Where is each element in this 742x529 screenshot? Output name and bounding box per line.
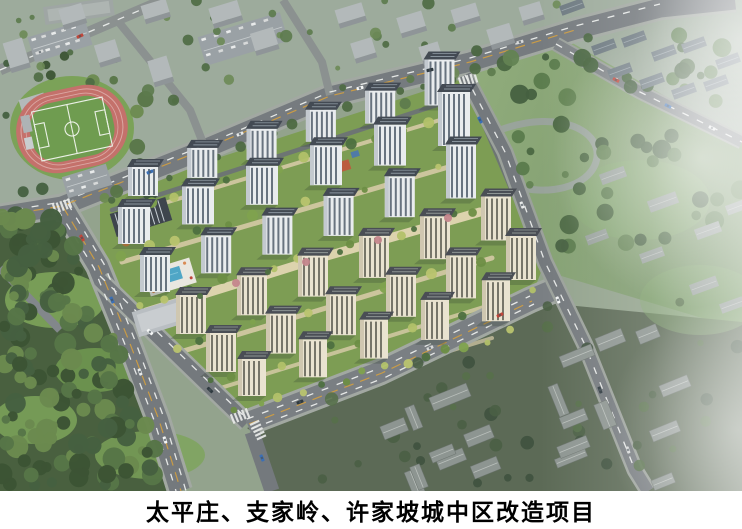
residential-tower <box>440 137 482 204</box>
tree <box>100 193 110 203</box>
tree <box>16 18 22 24</box>
caption-bar: 太平庄、支家岭、许家坡城中区改造项目 <box>0 491 742 529</box>
tree <box>362 187 368 193</box>
tower-side-shade <box>266 314 270 354</box>
tower-side-shade <box>386 275 390 317</box>
residential-tower <box>240 158 284 210</box>
tower-side-shade <box>247 129 251 160</box>
tree <box>160 296 168 304</box>
tower-side-shade <box>421 300 425 340</box>
tree <box>87 390 102 405</box>
tree <box>232 279 240 287</box>
tower-roof <box>480 189 517 197</box>
tower-roof <box>359 312 394 320</box>
tree <box>24 377 36 389</box>
tree <box>406 75 414 83</box>
residential-tower <box>122 159 164 201</box>
tree <box>2 112 9 119</box>
tower-side-shade <box>128 167 132 196</box>
tree <box>213 27 221 35</box>
tree <box>142 84 154 96</box>
tree <box>84 323 103 342</box>
tree <box>318 474 327 483</box>
tree <box>278 362 286 370</box>
tree <box>76 403 90 417</box>
tree <box>468 208 477 217</box>
tower-roof <box>364 83 401 91</box>
tree <box>168 95 179 106</box>
tower-shadow <box>231 315 267 320</box>
tree <box>74 267 83 276</box>
tower-side-shade <box>246 166 250 205</box>
tower-roof <box>297 248 334 256</box>
tower-side-shade <box>360 320 364 359</box>
tower-shadow <box>232 396 266 401</box>
residential-tower <box>318 188 360 241</box>
tower-roof <box>385 267 422 275</box>
tree <box>476 257 486 267</box>
tree <box>448 24 456 32</box>
residential-tower <box>195 227 237 278</box>
tree <box>224 75 234 85</box>
tree <box>325 392 338 405</box>
tree <box>100 371 118 389</box>
tree <box>287 119 298 130</box>
tree <box>318 381 325 388</box>
tree <box>100 335 118 353</box>
tree <box>108 197 115 204</box>
tree <box>98 465 116 483</box>
tower-side-shade <box>201 235 205 273</box>
tree <box>69 468 88 487</box>
tree <box>26 366 35 375</box>
tower-shadow <box>415 340 449 345</box>
tower-side-shade <box>324 196 328 236</box>
residential-tower <box>232 351 272 401</box>
tower-shadow <box>318 236 354 241</box>
tree <box>9 291 19 301</box>
residential-tower <box>134 247 176 297</box>
fog-haze <box>540 0 742 491</box>
tree <box>231 407 238 414</box>
tree <box>520 436 534 450</box>
tree <box>307 29 313 35</box>
tree <box>259 401 265 407</box>
tower-roof <box>181 178 220 186</box>
tree <box>413 442 421 450</box>
residential-tower <box>256 208 298 260</box>
tower-shadow <box>292 297 328 302</box>
tree <box>136 302 143 309</box>
tower-shadow <box>475 241 511 246</box>
tree <box>423 117 434 128</box>
tree <box>335 66 340 71</box>
tree <box>503 50 519 66</box>
tree <box>217 37 225 45</box>
tree <box>400 98 411 109</box>
tower-side-shade <box>206 333 210 372</box>
tree <box>12 356 27 371</box>
tree <box>227 373 236 382</box>
tree <box>273 393 282 402</box>
residential-tower <box>200 325 242 377</box>
tree <box>416 456 425 465</box>
tree <box>280 30 292 42</box>
residential-tower <box>368 117 412 171</box>
tree <box>34 72 44 82</box>
tower-facade <box>238 359 266 396</box>
tree <box>444 214 452 222</box>
tree <box>506 326 514 334</box>
tree <box>109 76 118 85</box>
tree <box>169 193 178 202</box>
tree <box>426 268 437 279</box>
tower-side-shade <box>306 110 310 142</box>
tree <box>142 459 158 475</box>
tree <box>125 419 135 429</box>
tree <box>490 439 503 452</box>
tower-side-shade <box>438 92 442 146</box>
tree <box>2 415 11 424</box>
tree <box>30 223 51 244</box>
tree <box>217 274 227 284</box>
tower-side-shade <box>299 339 303 377</box>
tower-roof <box>205 325 242 333</box>
tree <box>450 404 457 411</box>
tree <box>116 396 129 409</box>
residential-tower <box>181 140 223 183</box>
tower-side-shade <box>176 295 180 334</box>
tower-side-shade <box>262 216 266 255</box>
tree <box>346 138 357 149</box>
tower-facade <box>421 300 449 340</box>
tree <box>404 359 413 368</box>
aerial-rendering <box>0 0 742 491</box>
tree <box>301 197 311 207</box>
tower-side-shade <box>374 125 378 166</box>
tree <box>5 393 26 414</box>
tree <box>47 477 57 487</box>
tree <box>298 152 309 163</box>
residential-tower <box>415 292 455 345</box>
tree <box>98 418 118 438</box>
tree <box>435 164 441 170</box>
tower-side-shade <box>425 60 429 106</box>
tree <box>15 208 36 229</box>
tree <box>223 176 230 183</box>
tree <box>72 389 82 399</box>
tree <box>471 45 482 56</box>
tree <box>457 420 467 430</box>
tree <box>487 68 496 77</box>
tower-roof <box>445 247 482 255</box>
tower-shadow <box>476 321 510 326</box>
tower-side-shade <box>140 255 144 292</box>
tree <box>79 369 89 379</box>
tree <box>381 362 388 369</box>
residential-tower <box>176 178 220 229</box>
tower-side-shade <box>187 148 191 178</box>
tree <box>422 353 431 362</box>
tower-roof <box>505 228 542 236</box>
tower-facade <box>299 339 327 377</box>
tower-roof <box>445 137 482 145</box>
tree <box>510 85 529 104</box>
tree <box>36 183 48 195</box>
tree <box>41 462 51 472</box>
tree <box>170 236 180 246</box>
tower-shadow <box>414 259 450 264</box>
tower-roof <box>200 227 237 235</box>
tower-side-shade <box>481 197 485 241</box>
tree <box>208 377 214 383</box>
tree <box>57 416 71 430</box>
tree <box>68 433 89 454</box>
tree <box>374 236 382 244</box>
tower-roof <box>265 306 302 314</box>
tower-side-shade <box>482 280 486 321</box>
tower-roof <box>437 84 476 92</box>
tree <box>300 389 307 396</box>
tower-roof <box>305 102 342 110</box>
tree <box>18 186 29 197</box>
tree <box>48 293 66 311</box>
tower-side-shade <box>359 236 363 278</box>
tower-facade <box>482 280 510 321</box>
tree <box>408 323 417 332</box>
tree <box>473 478 482 487</box>
tree <box>235 141 246 152</box>
tree <box>110 185 123 198</box>
tree <box>525 474 533 482</box>
tower-roof <box>117 199 156 207</box>
tree <box>331 417 338 424</box>
tree <box>247 210 258 221</box>
tree <box>526 181 534 189</box>
tree <box>197 293 203 299</box>
tree <box>512 130 525 143</box>
tree <box>36 62 45 71</box>
tower-roof <box>246 121 283 129</box>
tree <box>46 70 56 80</box>
tree <box>342 101 353 112</box>
tree <box>358 367 365 374</box>
tower-side-shade <box>310 145 314 185</box>
tree <box>195 337 203 345</box>
residential-tower <box>476 272 516 326</box>
tree <box>24 468 39 483</box>
tower-roof <box>384 168 421 176</box>
tree <box>142 447 153 458</box>
residential-tower <box>304 137 348 190</box>
tree <box>29 15 34 20</box>
tree <box>64 236 83 255</box>
tree <box>202 63 210 71</box>
tree <box>265 269 271 275</box>
tree <box>469 63 480 74</box>
residential-tower <box>354 312 394 364</box>
tree <box>225 221 232 228</box>
tower-shadow <box>440 199 476 204</box>
tree <box>462 356 475 369</box>
tower-roof <box>237 351 272 359</box>
tree <box>459 342 469 352</box>
tree <box>382 41 389 48</box>
tree <box>116 251 127 262</box>
tree <box>61 349 83 371</box>
tree <box>44 432 57 445</box>
tree <box>7 308 25 326</box>
tree <box>370 28 381 39</box>
tree <box>441 344 450 353</box>
tree <box>458 312 467 321</box>
tree <box>193 226 202 235</box>
tower-side-shade <box>118 207 122 244</box>
tree <box>137 417 154 434</box>
tower-roof <box>481 272 516 280</box>
tree <box>250 319 256 325</box>
tower-side-shade <box>326 294 330 335</box>
tree <box>462 372 470 380</box>
tree <box>40 388 60 408</box>
tower-side-shade <box>365 91 369 124</box>
tree <box>173 344 182 353</box>
tree <box>18 244 41 267</box>
tree <box>411 226 417 232</box>
tower-roof <box>175 287 212 295</box>
tree <box>129 139 145 155</box>
tree <box>516 162 530 176</box>
tree <box>52 271 75 294</box>
project-title: 太平庄、支家岭、许家坡城中区改造项目 <box>146 493 596 527</box>
tree <box>302 258 310 266</box>
tree <box>61 368 76 383</box>
tower-side-shade <box>182 186 186 224</box>
residential-tower <box>260 306 302 359</box>
tree <box>25 347 37 359</box>
tower-shadow <box>353 278 389 283</box>
tree <box>327 341 335 349</box>
tree <box>269 10 277 18</box>
tower-facade <box>360 320 388 359</box>
tower-side-shade <box>446 145 450 199</box>
residential-tower <box>293 331 333 382</box>
tree <box>118 463 134 479</box>
tree <box>19 30 27 38</box>
tree <box>343 378 350 385</box>
tower-roof <box>186 140 223 148</box>
tree <box>304 309 313 318</box>
tower-shadow <box>256 255 292 260</box>
tree <box>91 356 107 372</box>
tower-side-shade <box>238 359 242 396</box>
tree <box>504 474 512 482</box>
tower-roof <box>139 247 176 255</box>
tree <box>486 372 494 380</box>
tower-roof <box>245 158 284 166</box>
tree <box>339 84 346 91</box>
tree <box>399 451 411 463</box>
tree <box>346 240 354 248</box>
tree <box>25 419 35 429</box>
tower-side-shade <box>420 216 424 259</box>
tower-side-shade <box>298 256 302 297</box>
tree <box>354 460 361 467</box>
tower-roof <box>358 228 395 236</box>
tower-roof <box>127 159 164 167</box>
tree <box>183 35 194 46</box>
tree <box>47 365 59 377</box>
tree <box>130 105 144 119</box>
tower-shadow <box>379 217 415 222</box>
tree <box>527 148 535 156</box>
tree <box>166 175 172 181</box>
tree <box>50 421 58 429</box>
tree <box>337 249 343 255</box>
tower-roof <box>298 331 333 339</box>
tower-roof <box>424 52 461 60</box>
tree <box>485 340 491 346</box>
residential-tower <box>379 168 421 222</box>
residential-tower <box>170 287 212 339</box>
tower-roof <box>325 286 362 294</box>
tower-roof <box>261 208 298 216</box>
tower-roof <box>420 292 455 300</box>
tower-roof <box>323 188 360 196</box>
tower-roof <box>373 117 412 125</box>
tree <box>27 428 43 444</box>
tree <box>529 287 536 294</box>
tree <box>67 49 73 55</box>
screenshot-root: 太平庄、支家岭、许家坡城中区改造项目 <box>0 0 742 529</box>
tree <box>0 436 14 451</box>
tower-side-shade <box>385 176 389 217</box>
tower-roof <box>309 137 348 145</box>
tree <box>397 231 406 240</box>
tree <box>412 357 423 368</box>
tree <box>489 405 501 417</box>
tree <box>15 330 26 341</box>
tree <box>18 454 31 467</box>
rendering-canvas <box>0 0 742 491</box>
